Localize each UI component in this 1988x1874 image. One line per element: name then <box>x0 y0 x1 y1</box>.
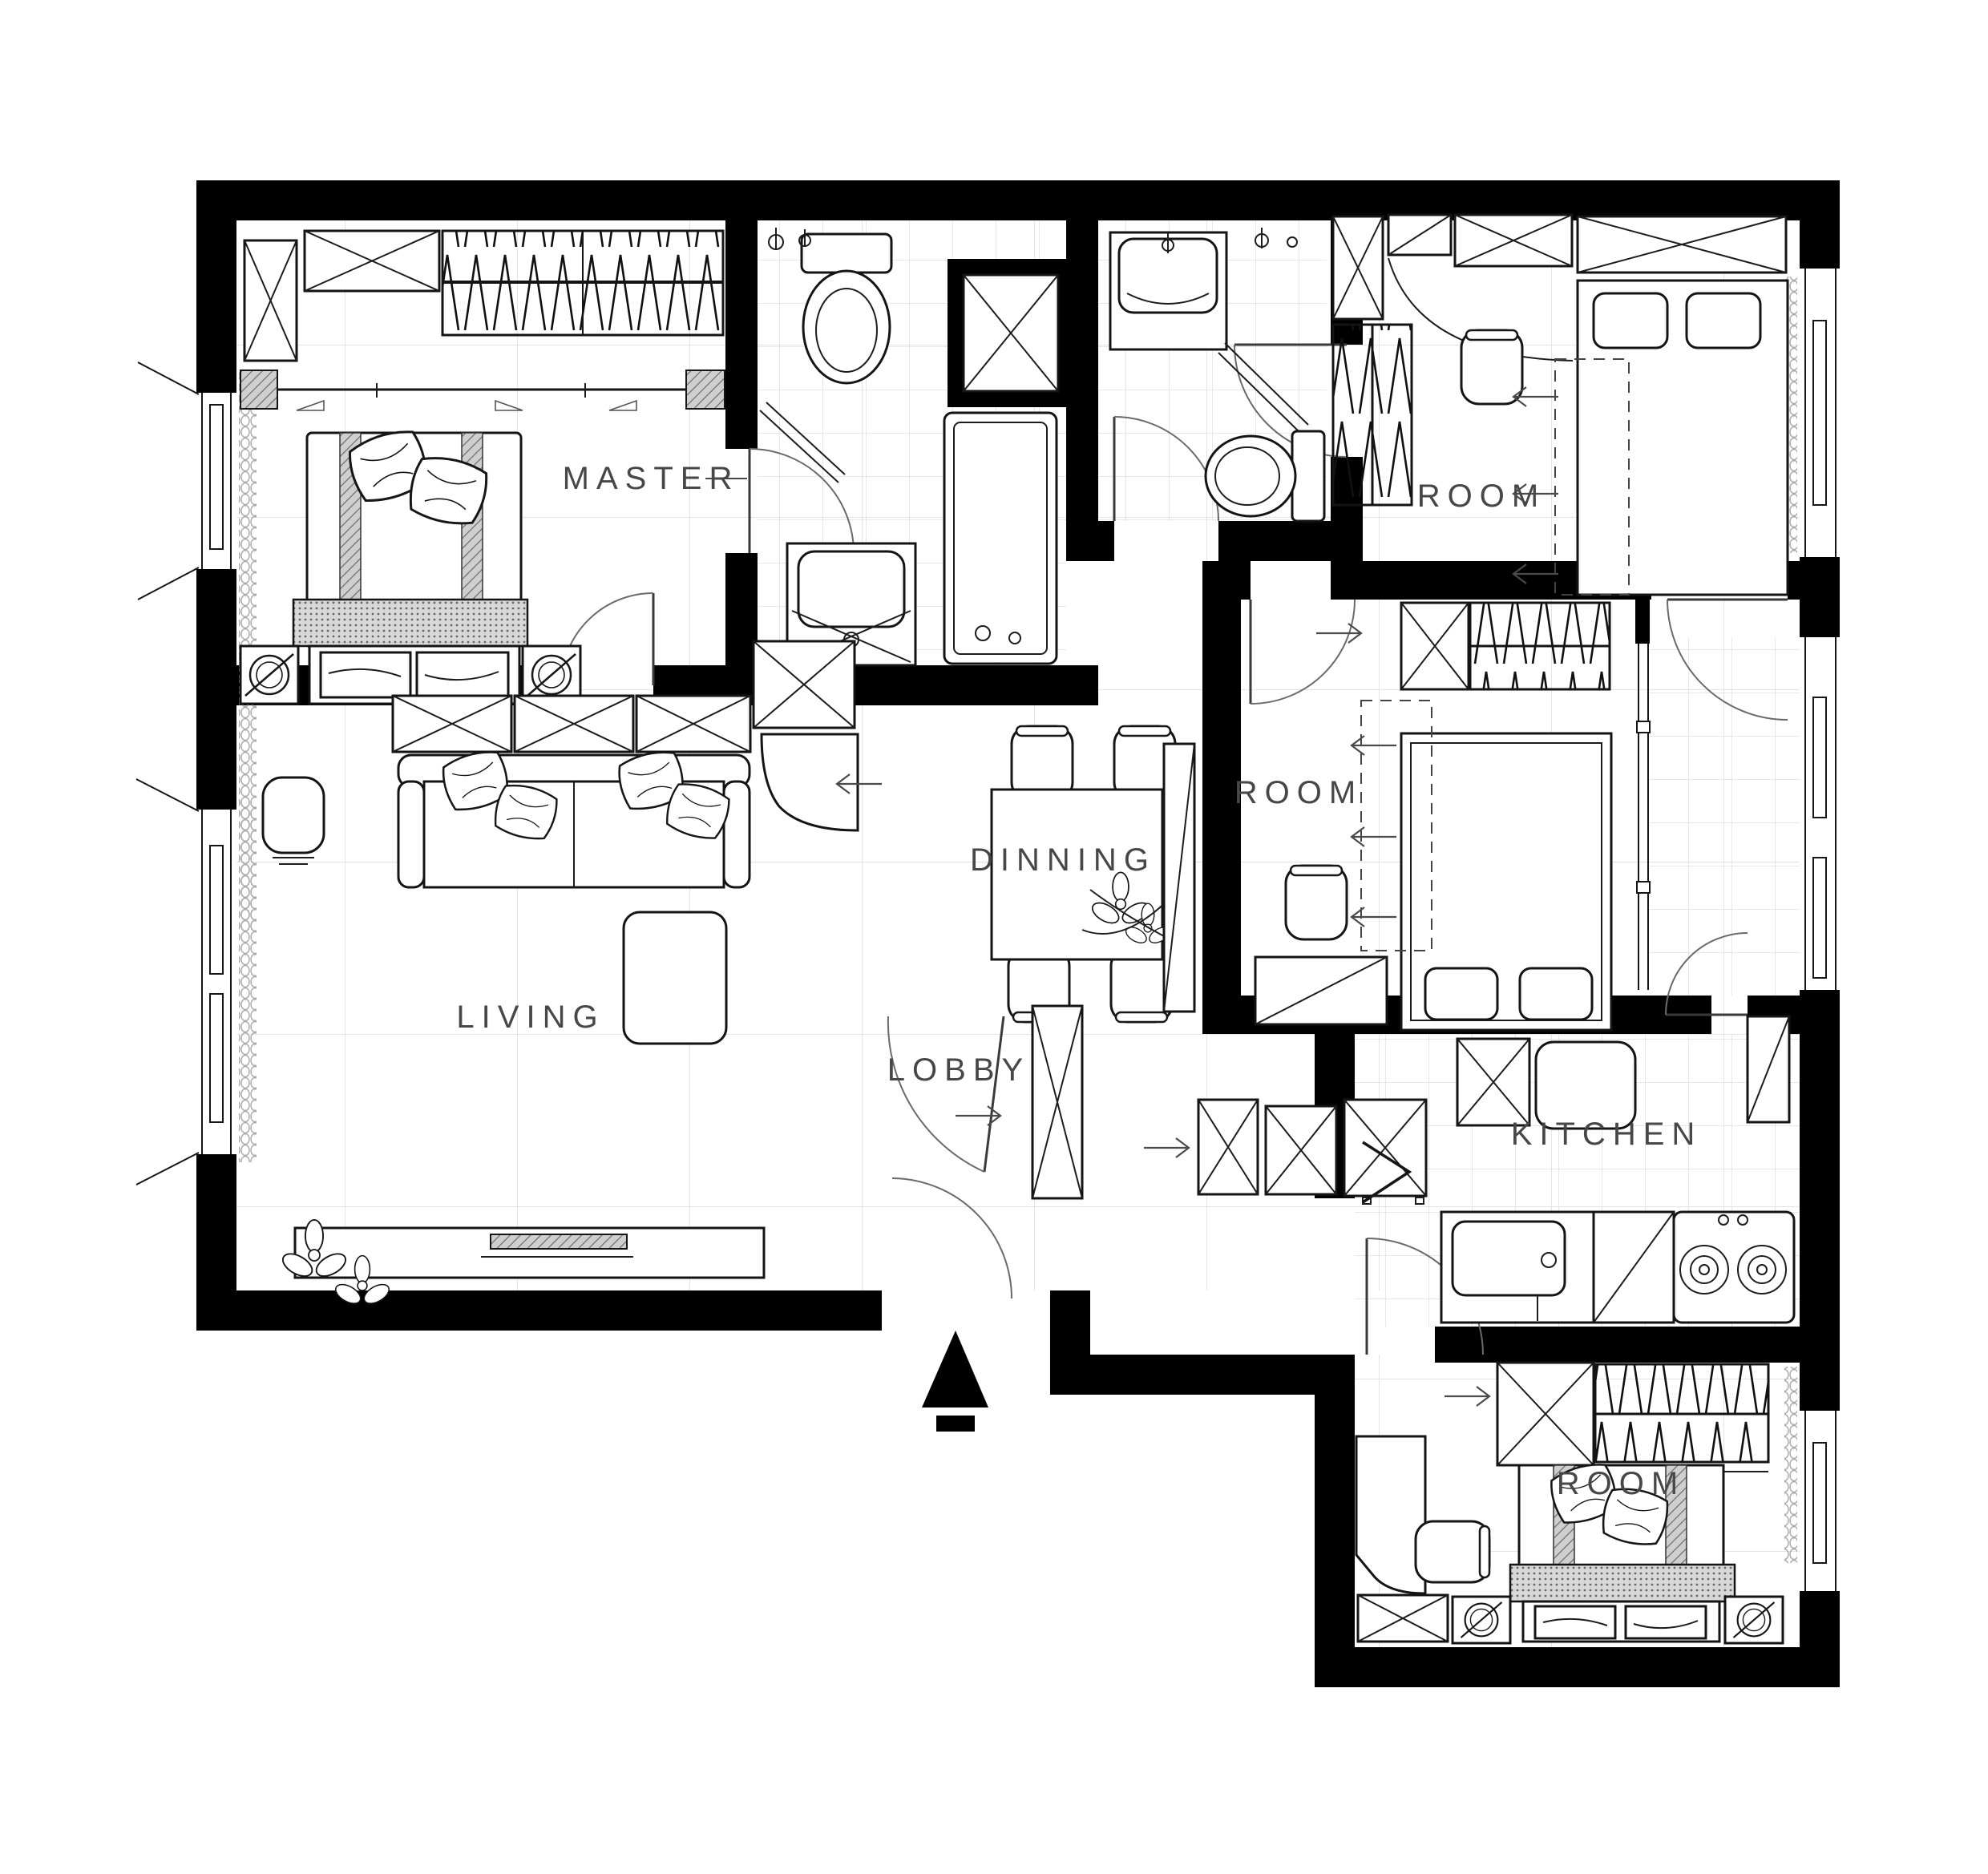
room3-xbox <box>1358 1595 1448 1642</box>
shoe-cabinet <box>1032 1006 1082 1198</box>
wall-balcony-stub <box>1635 600 1650 644</box>
room1-xbox-b <box>1578 216 1786 273</box>
curtain-room3 <box>1784 1367 1797 1563</box>
kitchen-tall-cabinet <box>1748 1016 1789 1122</box>
room1-xbox-a <box>1455 215 1572 266</box>
vanity-sink <box>1110 232 1226 349</box>
wall-room2-left <box>1202 600 1241 1034</box>
toilet-icon <box>802 234 891 383</box>
entry-arrow-marker <box>922 1331 988 1432</box>
label-room-middle: ROOM <box>1234 775 1363 810</box>
room1-bed <box>1555 281 1788 595</box>
room2-desk <box>1255 957 1387 1024</box>
window-living-left <box>136 779 234 1185</box>
duct-shaft-xbox <box>964 275 1058 391</box>
label-dining: DINNING <box>970 842 1156 878</box>
label-master: MASTER <box>563 461 740 496</box>
wall-right-3 <box>1800 990 1840 1411</box>
window-master-left <box>138 362 234 600</box>
wall-room1-bottom-c <box>1788 561 1840 600</box>
floor-plan-page: MASTER ROOM ROOM DINNING LIVING LOBBY KI… <box>0 0 1988 1874</box>
master-nightstand-left <box>240 646 298 704</box>
master-xbox-tall <box>244 240 297 361</box>
stool <box>263 777 324 864</box>
desk-chair <box>1461 330 1522 404</box>
coffee-table <box>624 912 726 1044</box>
dining-tall-cabinet <box>1164 744 1194 1012</box>
master-xbox-wide <box>305 231 439 291</box>
kitchen-counter <box>1441 1212 1794 1323</box>
room1-xbox-tall <box>1333 216 1383 319</box>
kitchen-xbox <box>1457 1039 1529 1125</box>
wall-bottom-right <box>1315 1647 1840 1687</box>
master-wardrobe-hangers <box>442 231 723 335</box>
wall-br-left <box>1315 1355 1355 1687</box>
room2-wardrobe-hangers <box>1470 603 1610 689</box>
room3-nightstand-right <box>1725 1597 1783 1643</box>
wall-right-1 <box>1800 180 1840 269</box>
window-room3-right <box>1802 1411 1837 1591</box>
wall-bath2-bottom-a <box>1066 521 1114 561</box>
wall-kitchen-bottom <box>1435 1327 1800 1363</box>
wall-left-1 <box>196 180 236 393</box>
room3-wardrobe-hangers <box>1595 1364 1768 1472</box>
kitchen-sink <box>1453 1222 1565 1295</box>
gas-cooktop <box>1674 1212 1794 1323</box>
sofa <box>398 748 750 887</box>
room2-xbox <box>1401 603 1469 689</box>
desk-chair <box>1286 866 1347 939</box>
desk-chair <box>1416 1521 1489 1582</box>
label-room-top-right: ROOM <box>1417 479 1546 514</box>
wall-top <box>196 180 1840 220</box>
room1-wardrobe-hangers <box>1333 325 1412 505</box>
bed-foot-runner <box>293 600 527 646</box>
room3-nightstand-left <box>1453 1597 1510 1643</box>
kitchen-unit <box>1536 1042 1635 1129</box>
wall-bath1-left-a <box>725 220 758 449</box>
label-room-bottom: ROOM <box>1557 1466 1685 1501</box>
window-room1-right <box>1802 269 1837 557</box>
wall-room1-bottom-a <box>1202 561 1251 600</box>
balcony-tiles <box>1650 638 1800 996</box>
wall-corridor-bottom <box>1050 1355 1355 1395</box>
window-balcony-right <box>1802 637 1837 990</box>
bathtub-icon <box>944 413 1057 664</box>
floor-plan-drawing: MASTER ROOM ROOM DINNING LIVING LOBBY KI… <box>0 0 1988 1874</box>
room3-wardrobe-xbox <box>1497 1363 1594 1465</box>
living-cabinet-row <box>393 696 750 752</box>
wall-balcony-bottom-a <box>1650 996 1666 1034</box>
label-lobby: LOBBY <box>887 1052 1030 1088</box>
label-living: LIVING <box>456 1000 604 1035</box>
curtain-living <box>239 802 257 1162</box>
master-bed <box>293 426 527 648</box>
wall-bottom-living <box>196 1290 882 1331</box>
room1-cab-slant <box>1388 215 1451 255</box>
toilet-icon <box>1206 431 1324 521</box>
label-kitchen: KITCHEN <box>1511 1117 1703 1152</box>
